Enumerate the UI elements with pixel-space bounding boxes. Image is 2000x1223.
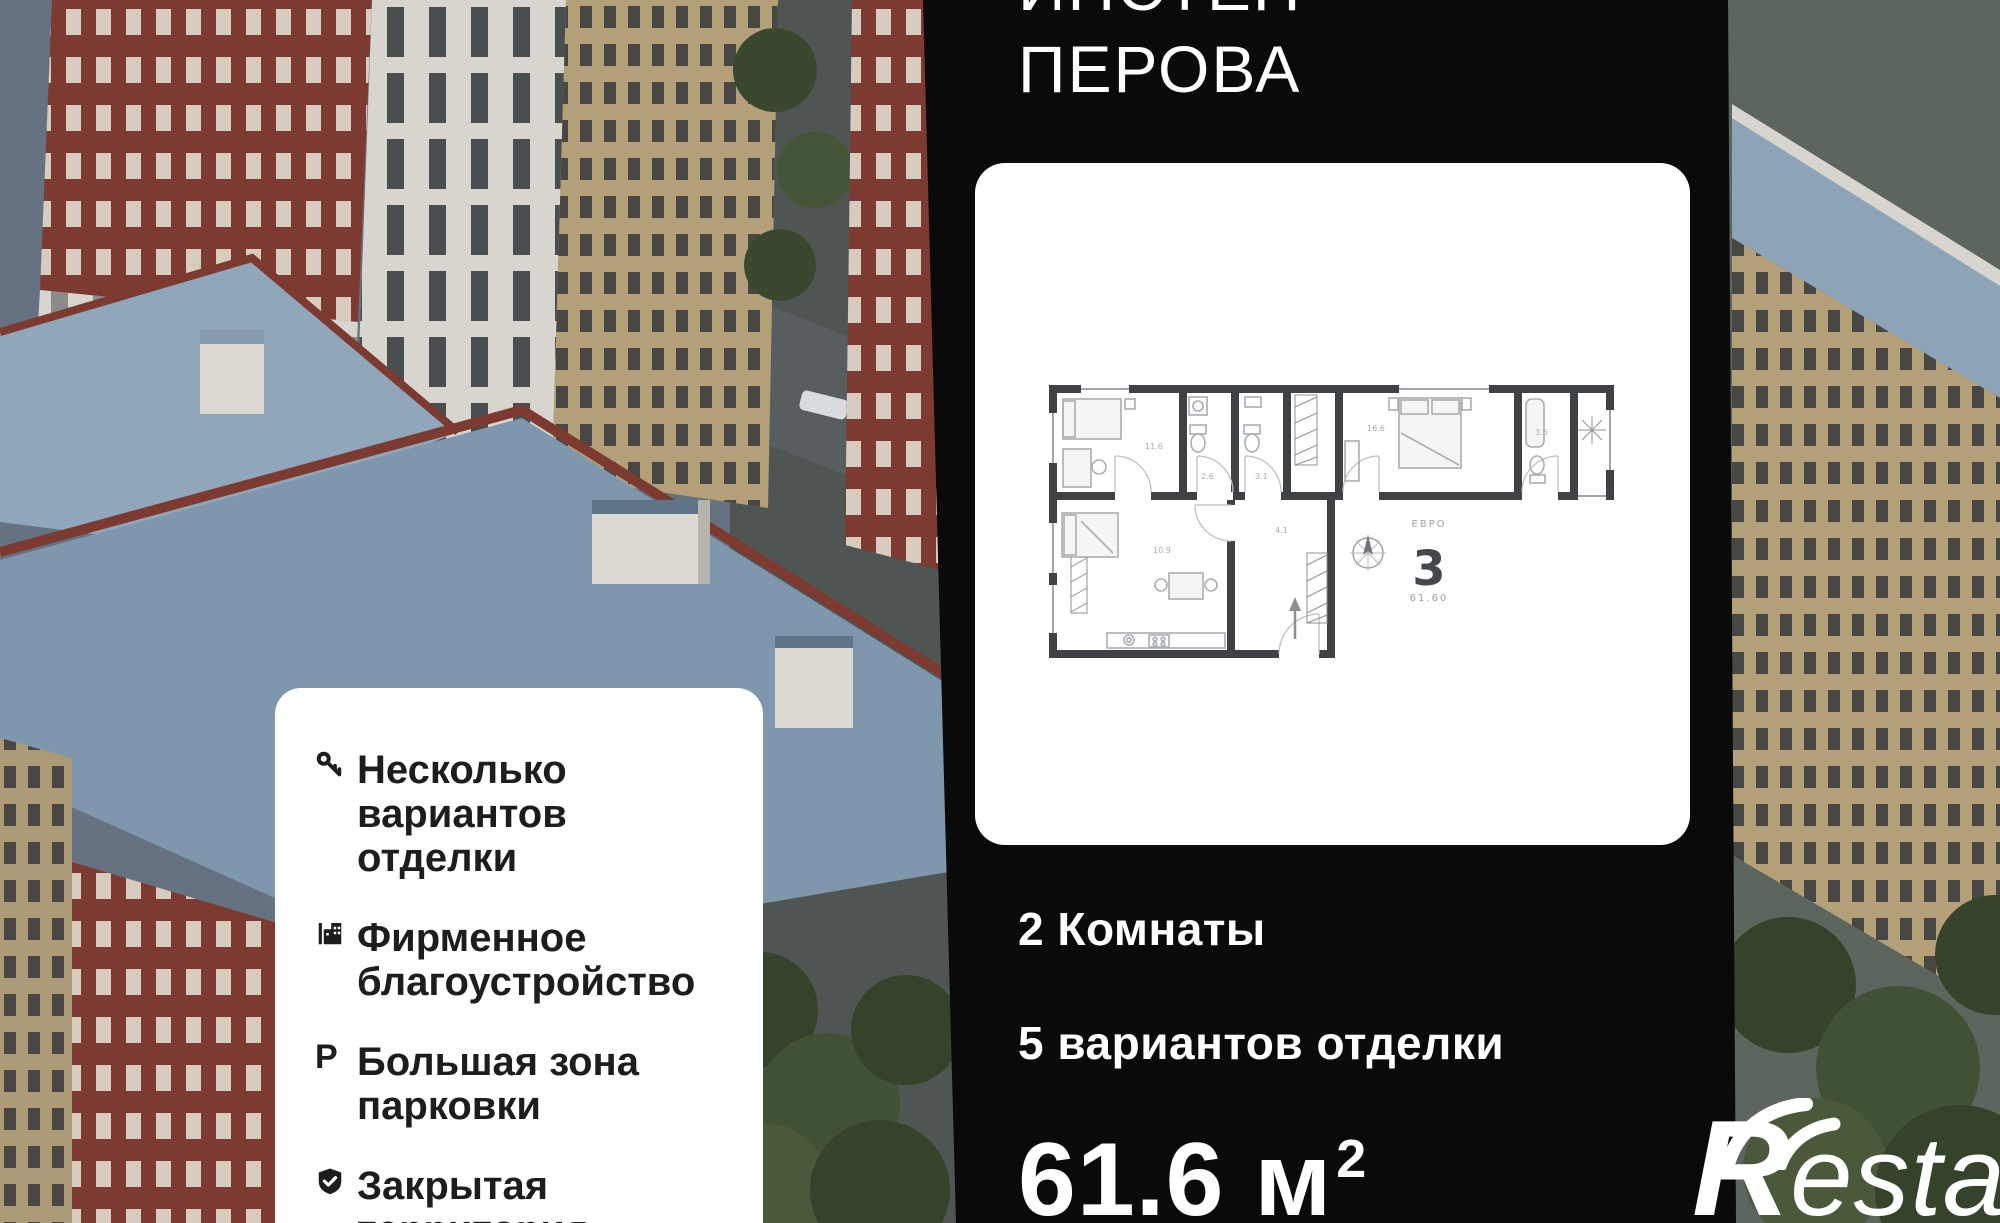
room-area: 10.9 <box>1153 546 1171 555</box>
room-area: 16.6 <box>1367 424 1385 433</box>
compass-icon <box>1350 535 1386 571</box>
restate-watermark: Restate <box>1692 1100 2000 1223</box>
building-icon <box>315 918 357 953</box>
finish-options: 5 вариантов отделки <box>1018 1016 1504 1070</box>
feature-item-landscaping: Фирменное благоустройство <box>315 916 735 1004</box>
watermark-suffix: estate <box>1790 1114 2000 1223</box>
feature-item-security: Закрытая территория <box>315 1164 735 1223</box>
promo-banner: ИНСТЕП ПЕРОВА <box>0 0 2000 1223</box>
room-area: 11.6 <box>1145 442 1163 451</box>
feature-text: Большая зона парковки <box>357 1040 727 1128</box>
area-unit: м <box>1254 1122 1332 1223</box>
feature-text: Несколько вариантов отделки <box>357 748 727 880</box>
parking-icon: P <box>315 1042 357 1073</box>
floorplan-drawing: ЕВРО 3 61.60 11.6 2.6 3.1 16.6 3.6 10.9 … <box>1049 385 1614 663</box>
project-title-line2: ПЕРОВА <box>1018 28 1302 110</box>
area-value: 61.6 <box>1018 1122 1224 1223</box>
feature-item-parking: P Большая зона парковки <box>315 1040 735 1128</box>
features-card: Несколько вариантов отделки Фирменное бл… <box>275 688 763 1223</box>
feature-text: Фирменное благоустройство <box>357 916 727 1004</box>
shield-check-icon <box>315 1166 357 1201</box>
feature-text: Закрытая территория <box>357 1164 727 1223</box>
watermark-initial: R <box>1692 1092 1790 1223</box>
feature-item-finishes: Несколько вариантов отделки <box>315 748 735 880</box>
apartment-area: 61.6 м2 <box>1018 1128 1367 1223</box>
unit-number: 3 <box>1412 541 1445 597</box>
key-icon <box>315 750 357 785</box>
project-title: ИНСТЕП ПЕРОВА <box>1018 0 1302 110</box>
floorplan-card: ЕВРО 3 61.60 11.6 2.6 3.1 16.6 3.6 10.9 … <box>975 163 1690 845</box>
room-area: 3.6 <box>1535 428 1548 437</box>
area-exponent: 2 <box>1336 1129 1367 1189</box>
project-title-line1: ИНСТЕП <box>1018 0 1302 28</box>
unit-type-label: ЕВРО <box>1411 519 1446 530</box>
room-area: 4.1 <box>1275 526 1288 535</box>
room-area: 3.1 <box>1255 472 1268 481</box>
unit-area: 61.60 <box>1410 593 1449 604</box>
rooms-count: 2 Комнаты <box>1018 902 1266 956</box>
room-area: 2.6 <box>1201 472 1214 481</box>
